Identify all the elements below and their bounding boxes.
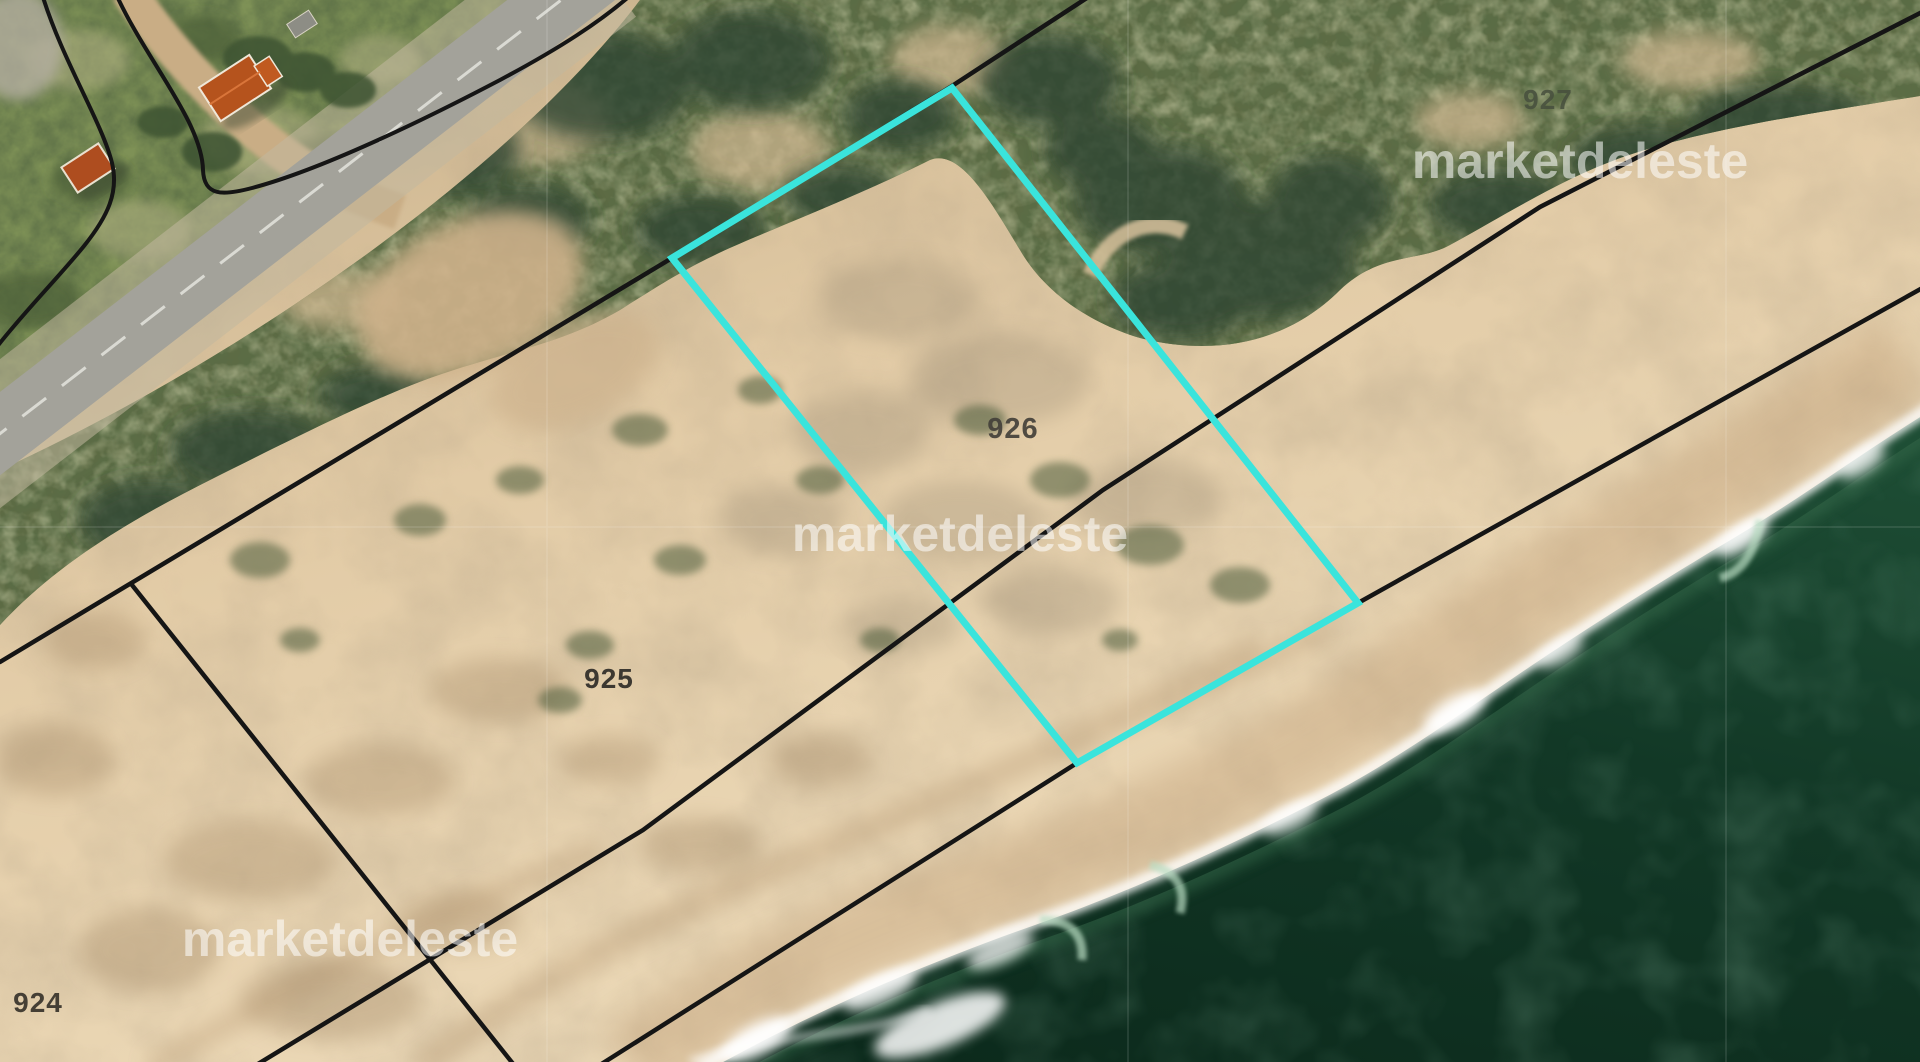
parcel-label-925: 925 (584, 663, 634, 694)
watermark-bottom-left: marketdeleste (182, 911, 518, 967)
parcel-label-924: 924 (13, 987, 63, 1018)
parcel-label-927: 927 (1523, 84, 1573, 115)
map-canvas[interactable]: 924 925 926 927 marketdeleste marketdele… (0, 0, 1920, 1062)
watermark-center: marketdeleste (792, 506, 1128, 562)
watermark-top-right: marketdeleste (1412, 133, 1748, 189)
parcel-label-926: 926 (987, 413, 1038, 445)
satellite-map[interactable]: 924 925 926 927 marketdeleste marketdele… (0, 0, 1920, 1062)
